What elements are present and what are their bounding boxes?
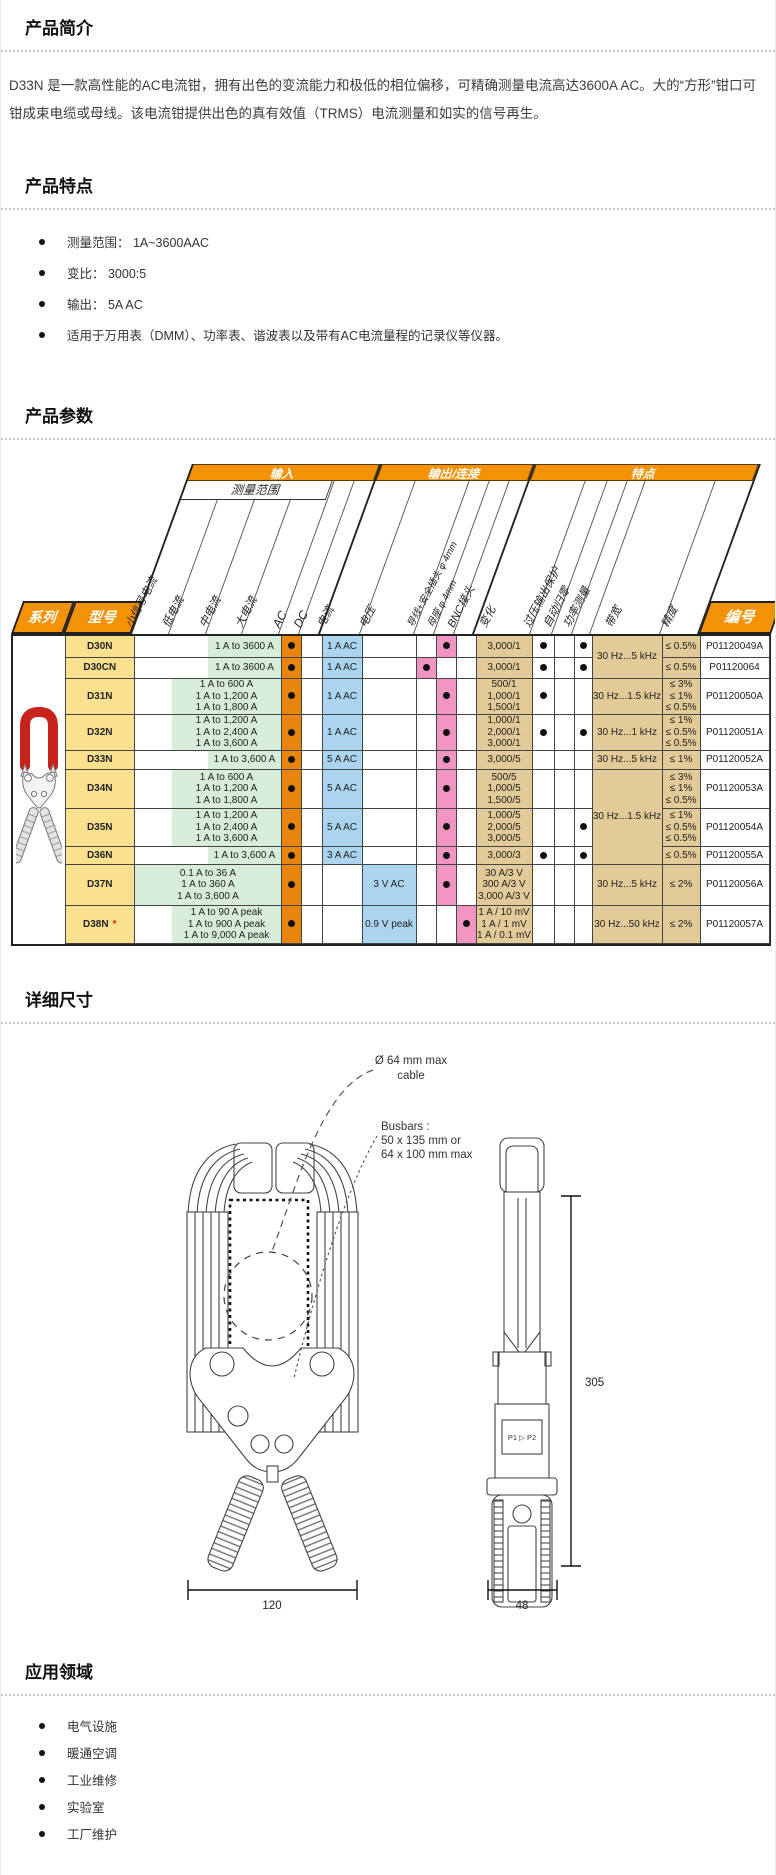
cell-socket (436, 808, 456, 846)
cell-accuracy: ≤ 0.5% (662, 657, 700, 678)
cell-ac (281, 636, 301, 657)
cell-ratio: 500/11,000/11,500/1 (476, 678, 532, 714)
dim-front-width: 120 (262, 1600, 281, 1612)
cell-ac (281, 678, 301, 714)
cell-dc (301, 905, 322, 943)
cell-ovp (532, 657, 554, 678)
cell-socket (436, 865, 456, 905)
section-applications: 应用领域 电气设施 暖通空调 工业维修 实验室 工厂维护 (1, 1662, 775, 1847)
cell-bandwidth: 30 Hz...5 kHz (592, 751, 662, 770)
cell-autozero (554, 905, 574, 943)
cell-dc (301, 865, 322, 905)
cell-range: 1 A to 1,200 A1 A to 2,400 A1 A to 3,600… (134, 714, 281, 750)
features-list: 测量范围： 1A~3600AAC 变比： 3000:5 输出： 5A AC 适用… (1, 226, 775, 350)
cell-bandwidth: 30 Hz...5 kHz (592, 636, 662, 678)
cell-model: D30N (66, 636, 134, 657)
table-row: D32N1 A to 1,200 A1 A to 2,400 A1 A to 3… (66, 714, 769, 750)
cell-part: P01120051A (700, 714, 769, 750)
cell-socket (436, 751, 456, 770)
table-row: D34N1 A to 600 A1 A to 1,200 A1 A to 1,8… (66, 770, 769, 808)
list-item: 测量范围： 1A~3600AAC (1, 226, 775, 257)
cell-model: D37N (66, 865, 134, 905)
cell-dc (301, 636, 322, 657)
busbars-label-line2: 50 x 135 mm or (381, 1135, 461, 1147)
bullet-icon (39, 1831, 45, 1837)
cell-power (574, 865, 592, 905)
cell-model: D34N (66, 770, 134, 808)
cell-part: P01120050A (700, 678, 769, 714)
list-item: 适用于万用表（DMM）、功率表、谐波表以及带有AC电流量程的记录仪等仪器。 (1, 319, 775, 350)
cell-power (574, 846, 592, 864)
cell-ratio: 3,000/1 (476, 657, 532, 678)
cell-model: D35N (66, 808, 134, 846)
measure-range-header: 测量范围 (180, 481, 333, 500)
intro-body: D33N 是一款高性能的AC电流钳，拥有出色的变流能力和极低的相位偏移，可精确测… (9, 72, 767, 128)
cell-socket (436, 657, 456, 678)
cell-bnc (456, 865, 476, 905)
cell-voltage (362, 846, 416, 864)
section-features: 产品特点 测量范围： 1A~3600AAC 变比： 3000:5 输出： 5A … (1, 176, 775, 350)
cell-lead (416, 865, 436, 905)
cell-lead (416, 770, 436, 808)
cell-ovp (532, 905, 554, 943)
cell-ratio: 500/51,000/51,500/5 (476, 770, 532, 808)
feature-text: 测量范围： 1A~3600AAC (67, 232, 209, 251)
feature-text: 适用于万用表（DMM）、功率表、谐波表以及带有AC电流量程的记录仪等仪器。 (67, 325, 508, 344)
cell-autozero (554, 657, 574, 678)
cell-power (574, 751, 592, 770)
cell-lead (416, 808, 436, 846)
spec-grid: D30N1 A to 3600 A1 A AC3,000/130 Hz...5 … (66, 636, 770, 944)
cell-ratio: 1 A / 10 mV1 A / 1 mV1 A / 0.1 mV (476, 905, 532, 943)
cell-accuracy: ≤ 0.5% (662, 846, 700, 864)
cell-autozero (554, 678, 574, 714)
cell-power (574, 678, 592, 714)
cell-power (574, 636, 592, 657)
divider (1, 1694, 775, 1696)
cell-autozero (554, 714, 574, 750)
cell-socket (436, 636, 456, 657)
cell-power (574, 770, 592, 808)
cell-model: D30CN (66, 657, 134, 678)
dim-side-width: 48 (516, 1600, 529, 1612)
cell-model: D31N (66, 678, 134, 714)
application-text: 暖通空调 (67, 1743, 117, 1762)
cell-power (574, 808, 592, 846)
table-row: D38N*1 A to 90 A peak1 A to 900 A peak1 … (66, 905, 769, 943)
section-params: 产品参数 输入 输出/连接 特点 测量范围 (1, 406, 775, 946)
group-features: 特点 (530, 464, 759, 481)
cell-dc (301, 846, 322, 864)
cell-socket (436, 714, 456, 750)
cell-range: 1 A to 3,600 A (134, 846, 281, 864)
divider (1, 1022, 775, 1024)
busbars-label-line3: 64 x 100 mm max (381, 1149, 473, 1161)
application-text: 工厂维护 (67, 1824, 117, 1843)
cell-voltage (362, 657, 416, 678)
cell-bnc (456, 636, 476, 657)
features-title: 产品特点 (25, 176, 775, 198)
product-page: 产品简介 D33N 是一款高性能的AC电流钳，拥有出色的变流能力和极低的相位偏移… (0, 0, 776, 1875)
cell-dc (301, 770, 322, 808)
cell-model: D36N (66, 846, 134, 864)
table-row: D37N0.1 A to 36 A1 A to 360 A1 A to 3,60… (66, 865, 769, 905)
cell-voltage (362, 636, 416, 657)
cell-model: D33N (66, 751, 134, 770)
cell-bnc (456, 751, 476, 770)
cell-lead (416, 846, 436, 864)
divider (1, 208, 775, 210)
cell-range: 1 A to 3,600 A (134, 751, 281, 770)
cell-bandwidth: 30 Hz...1 kHz (592, 714, 662, 750)
list-item: 实验室 (1, 1793, 775, 1820)
cell-autozero (554, 865, 574, 905)
bullet-icon (39, 332, 45, 338)
cell-socket (436, 846, 456, 864)
cell-accuracy: ≤ 1% (662, 751, 700, 770)
feature-text: 变比： 3000:5 (67, 263, 146, 282)
cell-accuracy: ≤ 0.5% (662, 636, 700, 657)
bullet-icon (39, 1777, 45, 1783)
cell-accuracy: ≤ 3%≤ 1%≤ 0.5% (662, 678, 700, 714)
cell-voltage (362, 678, 416, 714)
cell-accuracy: ≤ 1%≤ 0.5%≤ 0.5% (662, 714, 700, 750)
cell-voltage (362, 751, 416, 770)
cell-ac (281, 714, 301, 750)
cell-dc (301, 714, 322, 750)
cell-part: P01120055A (700, 846, 769, 864)
cell-bnc (456, 657, 476, 678)
bullet-icon (39, 1723, 45, 1729)
cell-ratio: 1,000/12,000/13,000/1 (476, 714, 532, 750)
cell-ovp (532, 636, 554, 657)
dims-title: 详细尺寸 (25, 990, 775, 1012)
section-intro: 产品简介 D33N 是一款高性能的AC电流钳，拥有出色的变流能力和极低的相位偏移… (1, 0, 775, 128)
cell-ac (281, 905, 301, 943)
application-text: 实验室 (67, 1797, 105, 1816)
cell-autozero (554, 751, 574, 770)
table-row: D35N1 A to 1,200 A1 A to 2,400 A1 A to 3… (66, 808, 769, 846)
cell-range: 0.1 A to 36 A1 A to 360 A1 A to 3,600 A (134, 865, 281, 905)
cell-range: 1 A to 600 A1 A to 1,200 A1 A to 1,800 A (134, 678, 281, 714)
cell-lead (416, 905, 436, 943)
cell-range: 1 A to 600 A1 A to 1,200 A1 A to 1,800 A (134, 770, 281, 808)
cell-socket (436, 770, 456, 808)
cell-dc (301, 808, 322, 846)
cell-ac (281, 846, 301, 864)
cell-part: P01120049A (700, 636, 769, 657)
cell-ratio: 3,000/1 (476, 636, 532, 657)
list-item: 输出： 5A AC (1, 288, 775, 319)
application-text: 电气设施 (67, 1716, 117, 1735)
cell-bandwidth: 30 Hz...50 kHz (592, 905, 662, 943)
cell-voltage (362, 770, 416, 808)
table-row: D36N1 A to 3,600 A3 A AC3,000/3≤ 0.5%P01… (66, 846, 769, 864)
cell-bnc (456, 808, 476, 846)
cell-range: 1 A to 3600 A (134, 636, 281, 657)
bullet-icon (39, 1804, 45, 1810)
cell-ovp (532, 678, 554, 714)
col-header-part: 编号 (698, 601, 776, 634)
cell-bandwidth: 30 Hz...1.5 kHz (592, 678, 662, 714)
cell-current: 3 A AC (322, 846, 362, 864)
cell-autozero (554, 808, 574, 846)
divider (1, 50, 775, 52)
cell-range: 1 A to 90 A peak1 A to 900 A peak1 A to … (134, 905, 281, 943)
cell-model: D32N (66, 714, 134, 750)
spec-table-header: 输入 输出/连接 特点 测量范围 (11, 464, 776, 634)
cell-series (13, 636, 66, 944)
list-item: 工业维修 (1, 1766, 775, 1793)
cell-lead (416, 751, 436, 770)
cell-accuracy: ≤ 2% (662, 865, 700, 905)
cell-current (322, 905, 362, 943)
cell-voltage (362, 808, 416, 846)
cell-ac (281, 657, 301, 678)
group-output: 输出/连接 (376, 464, 534, 481)
cell-socket (436, 905, 456, 943)
cell-autozero (554, 636, 574, 657)
table-row: D31N1 A to 600 A1 A to 1,200 A1 A to 1,8… (66, 678, 769, 714)
cell-power (574, 657, 592, 678)
apps-title: 应用领域 (25, 1662, 775, 1684)
cell-bnc (456, 678, 476, 714)
cell-ratio: 3,000/5 (476, 751, 532, 770)
bullet-icon (39, 270, 45, 276)
cable-label-line1: Ø 64 mm max (375, 1055, 447, 1067)
applications-list: 电气设施 暖通空调 工业维修 实验室 工厂维护 (1, 1712, 775, 1847)
cell-ratio: 1,000/52,000/53,000/5 (476, 808, 532, 846)
intro-title: 产品简介 (25, 18, 775, 40)
grid-line (472, 464, 536, 634)
product-photo-clamp (16, 706, 62, 874)
cell-bandwidth: 30 Hz...1.5 kHz (592, 770, 662, 865)
cell-ac (281, 770, 301, 808)
cell-current: 5 A AC (322, 808, 362, 846)
bullet-icon (39, 1750, 45, 1756)
cell-range: 1 A to 1,200 A1 A to 2,400 A1 A to 3,600… (134, 808, 281, 846)
cell-ac (281, 751, 301, 770)
cell-ovp (532, 714, 554, 750)
cell-autozero (554, 846, 574, 864)
cell-part: P01120053A (700, 770, 769, 808)
cell-ovp (532, 751, 554, 770)
cell-ovp (532, 770, 554, 808)
cell-dc (301, 678, 322, 714)
table-row: D30CN1 A to 3600 A1 A AC3,000/1≤ 0.5%P01… (66, 657, 769, 678)
cell-power (574, 905, 592, 943)
cell-voltage: 3 V AC (362, 865, 416, 905)
cell-part: P01120052A (700, 751, 769, 770)
cell-accuracy: ≤ 3%≤ 1%≤ 0.5% (662, 770, 700, 808)
feature-text: 输出： 5A AC (67, 294, 143, 313)
list-item: 暖通空调 (1, 1739, 775, 1766)
list-item: 电气设施 (1, 1712, 775, 1739)
bullet-icon (39, 239, 45, 245)
params-title: 产品参数 (25, 406, 775, 428)
cell-part: P01120056A (700, 865, 769, 905)
list-item: 变比： 3000:5 (1, 257, 775, 288)
cable-label-line2: cable (397, 1070, 425, 1082)
cell-current: 1 A AC (322, 657, 362, 678)
cell-ovp (532, 865, 554, 905)
busbars-label-line1: Busbars : (381, 1121, 430, 1133)
front-view (187, 1143, 358, 1574)
bullet-icon (39, 301, 45, 307)
cell-part: P01120064 (700, 657, 769, 678)
table-row: D30N1 A to 3600 A1 A AC3,000/130 Hz...5 … (66, 636, 769, 657)
cell-bandwidth: 30 Hz...5 kHz (592, 865, 662, 905)
cell-dc (301, 751, 322, 770)
cell-current: 1 A AC (322, 636, 362, 657)
list-item: 工厂维护 (1, 1820, 775, 1847)
cell-lead (416, 714, 436, 750)
dim-height: 305 (585, 1377, 604, 1389)
cell-autozero (554, 770, 574, 808)
cell-lead (416, 657, 436, 678)
cell-power (574, 714, 592, 750)
cell-current (322, 865, 362, 905)
cell-part: P01120057A (700, 905, 769, 943)
spec-table: 输入 输出/连接 特点 测量范围 (11, 464, 771, 946)
cell-range: 1 A to 3600 A (134, 657, 281, 678)
group-input: 输入 (187, 464, 380, 481)
cell-accuracy: ≤ 1%≤ 0.5%≤ 0.5% (662, 808, 700, 846)
cell-current: 5 A AC (322, 770, 362, 808)
cell-current: 1 A AC (322, 678, 362, 714)
dimension-drawing: P1 ▷ P2 Ø 64 mm max cable Busbars : 50 x… (1, 1048, 776, 1648)
cell-bnc (456, 714, 476, 750)
cell-socket (436, 678, 456, 714)
cell-bnc (456, 770, 476, 808)
cell-lead (416, 636, 436, 657)
table-row: D33N1 A to 3,600 A5 A AC3,000/530 Hz...5… (66, 751, 769, 770)
cell-ovp (532, 808, 554, 846)
cell-current: 1 A AC (322, 714, 362, 750)
side-view (487, 1138, 557, 1607)
cell-ratio: 3,000/3 (476, 846, 532, 864)
cell-dc (301, 657, 322, 678)
cell-bnc (456, 846, 476, 864)
cell-ratio: 30 A/3 V300 A/3 V3,000 A/3 V (476, 865, 532, 905)
cell-model: D38N* (66, 905, 134, 943)
application-text: 工业维修 (67, 1770, 117, 1789)
cell-current: 5 A AC (322, 751, 362, 770)
cell-ovp (532, 846, 554, 864)
cell-accuracy: ≤ 2% (662, 905, 700, 943)
cell-ac (281, 808, 301, 846)
cell-lead (416, 678, 436, 714)
cell-part: P01120054A (700, 808, 769, 846)
cell-bnc (456, 905, 476, 943)
panel-label: P1 ▷ P2 (508, 1433, 536, 1442)
cell-voltage: 0.9 V peak (362, 905, 416, 943)
divider (1, 438, 775, 440)
section-dimensions: 详细尺寸 (1, 990, 775, 1648)
cell-ac (281, 865, 301, 905)
spec-table-body: D30N1 A to 3600 A1 A AC3,000/130 Hz...5 … (11, 634, 771, 946)
cell-voltage (362, 714, 416, 750)
